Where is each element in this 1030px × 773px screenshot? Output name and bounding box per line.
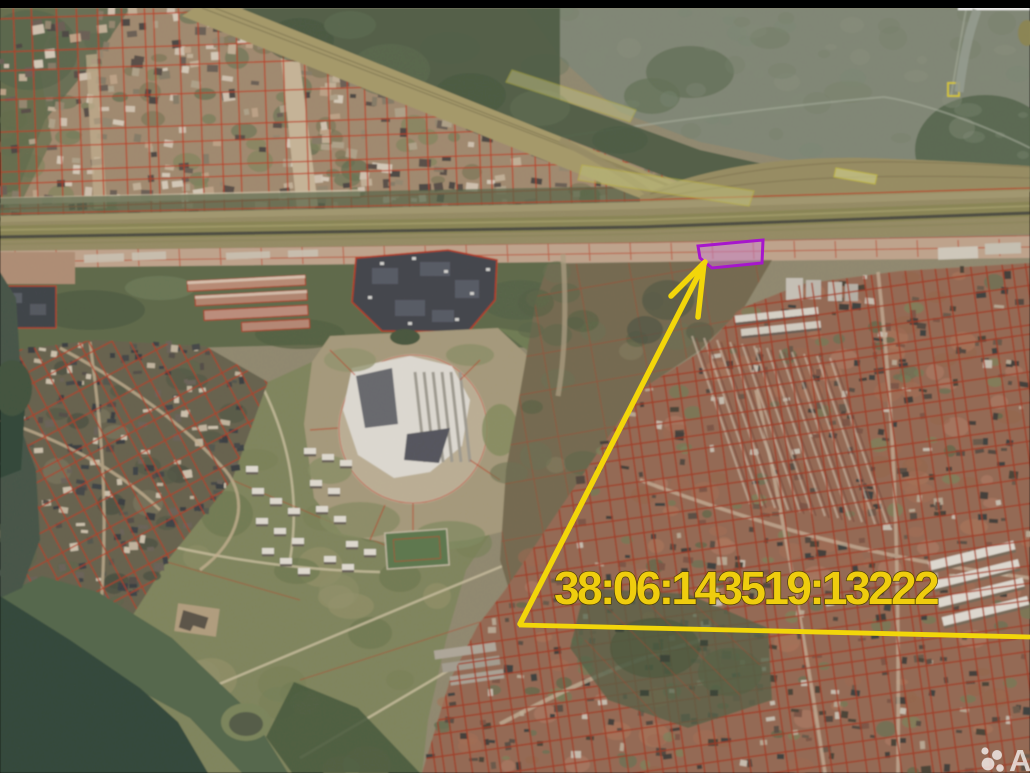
svg-text:Ав: Ав (1009, 743, 1030, 773)
svg-text:38:06:143519:13222: 38:06:143519:13222 (554, 562, 938, 614)
